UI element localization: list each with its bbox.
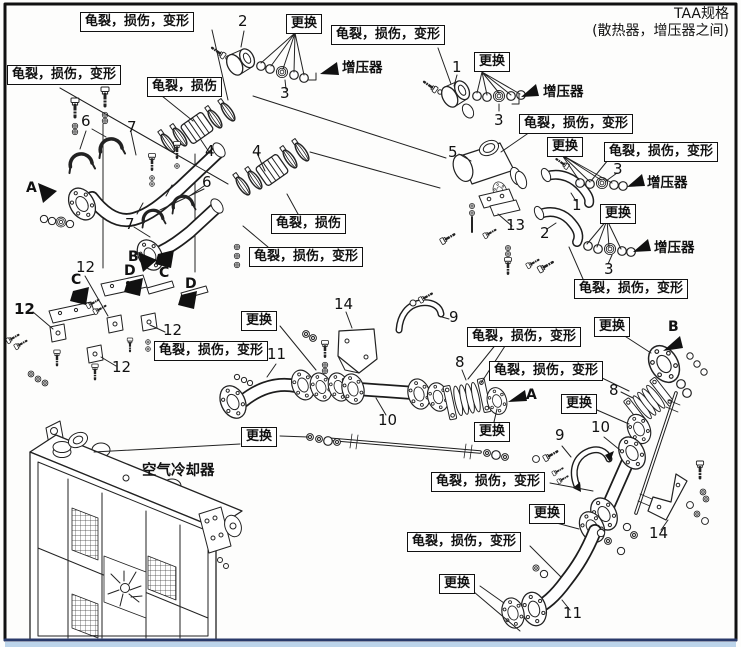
arrow-turbo-3 — [627, 174, 645, 187]
part-number-13: 13 — [506, 218, 525, 233]
callout-replace-9: 更换 — [241, 427, 277, 447]
page-title: TAA规格 (散热器，增压器之间) — [592, 6, 729, 40]
part-number-4-b: 4 — [252, 144, 262, 159]
part-number-14-b: 14 — [649, 526, 668, 541]
part-number-5: 5 — [448, 145, 458, 160]
part-number-7-b: 7 — [125, 217, 135, 232]
callout-crack-damage-deform-12: 龟裂，损伤，变形 — [407, 532, 521, 552]
part-number-1-b: 1 — [572, 198, 582, 213]
part-number-3-d: 3 — [604, 262, 614, 277]
arrow-turbo-2 — [521, 84, 539, 97]
part-number-14-a: 14 — [334, 297, 353, 312]
callout-replace-10: 更换 — [529, 504, 565, 524]
part-number-8-b: 8 — [609, 383, 619, 398]
page-title-line1: TAA规格 — [592, 6, 729, 23]
ref-letter-b-1: B — [128, 250, 139, 264]
part-number-9-b: 9 — [555, 428, 565, 443]
part-number-1-a: 1 — [452, 60, 462, 75]
part-number-2-a: 2 — [238, 14, 248, 29]
callout-crack-damage-deform-9: 龟裂，损伤，变形 — [467, 327, 581, 347]
part-number-12-c: 12 — [163, 323, 182, 338]
callout-crack-damage-deform-6: 龟裂，损伤，变形 — [249, 247, 363, 267]
callout-replace-2: 更换 — [474, 52, 510, 72]
part-number-10-a: 10 — [378, 413, 397, 428]
part-number-11-b: 11 — [563, 606, 582, 621]
part-number-3-a: 3 — [280, 86, 290, 101]
part-number-3-b: 3 — [494, 113, 504, 128]
callout-replace-11: 更换 — [439, 574, 475, 594]
part-number-2-b: 2 — [540, 226, 550, 241]
air-cooler — [30, 421, 244, 640]
callout-replace-8: 更换 — [474, 422, 510, 442]
ref-letter-c-1: C — [71, 273, 81, 287]
callout-replace-6: 更换 — [594, 317, 630, 337]
callout-crack-damage-deform-7: 龟裂，损伤，变形 — [574, 279, 688, 299]
ref-letter-b-2: B — [668, 320, 679, 334]
arrow-turbo-1 — [320, 62, 339, 75]
callout-crack-damage-deform-10: 龟裂，损伤，变形 — [489, 361, 603, 381]
callout-replace-1: 更换 — [286, 14, 322, 34]
callout-crack-damage-deform-11: 龟裂，损伤，变形 — [431, 472, 545, 492]
label-turbocharger-3: 增压器 — [647, 171, 688, 191]
center-pipe-group — [215, 367, 510, 423]
part-number-9-a: 9 — [449, 310, 459, 325]
turbo-connector-1 — [422, 77, 525, 119]
callout-crack-damage-deform-5: 龟裂，损伤，变形 — [604, 142, 718, 162]
part-number-4-a: 4 — [205, 144, 215, 159]
part-number-6-b: 6 — [202, 175, 212, 190]
callout-crack-damage-deform-1: 龟裂，损伤，变形 — [80, 12, 194, 32]
callout-crack-damage-1: 龟裂，损伤 — [147, 77, 222, 97]
ref-letter-a-2: A — [526, 388, 537, 402]
part-number-12-d: 12 — [112, 360, 131, 375]
label-turbocharger-1: 增压器 — [342, 56, 383, 76]
turbo-connector-2 — [210, 45, 308, 82]
tube-9-right — [542, 449, 614, 492]
page-title-line2: (散热器，增压器之间) — [592, 23, 729, 40]
callout-crack-damage-deform-4: 龟裂，损伤，变形 — [519, 114, 633, 134]
part-number-6-a: 6 — [81, 114, 91, 129]
callout-crack-damage-deform-3: 龟裂，损伤，变形 — [7, 65, 121, 85]
label-air-cooler: 空气冷却器 — [142, 459, 215, 480]
ref-letter-c-2: C — [159, 266, 169, 280]
part-number-12-b: 12 — [14, 302, 35, 317]
part-number-8-a: 8 — [455, 355, 465, 370]
arrow-turbo-4 — [633, 239, 651, 252]
callout-replace-7: 更换 — [561, 394, 597, 414]
part-number-7-a: 7 — [127, 120, 137, 135]
callout-replace-4: 更换 — [600, 204, 636, 224]
part-number-10-b: 10 — [591, 420, 610, 435]
callout-crack-damage-deform-2: 龟裂，损伤，变形 — [331, 25, 445, 45]
arrow-a-lower — [508, 390, 527, 402]
arrow-b-lower — [663, 336, 683, 351]
ref-letter-d-1: D — [124, 264, 136, 278]
label-turbocharger-4: 增压器 — [654, 236, 695, 256]
wedge-c-1 — [70, 287, 89, 305]
callout-crack-damage-deform-8: 龟裂，损伤，变形 — [154, 341, 268, 361]
diagram-page: TAA规格 (散热器，增压器之间) 龟裂，损伤，变形 更换 龟裂，损伤，变形 龟… — [0, 0, 741, 647]
ref-letter-d-2: D — [185, 277, 197, 291]
callout-replace-5: 更换 — [241, 311, 277, 331]
arrow-a-upper — [38, 183, 57, 203]
label-turbocharger-2: 增压器 — [543, 80, 584, 100]
tube-9-left — [399, 291, 441, 330]
ref-letter-a-1: A — [26, 181, 37, 195]
callout-crack-damage-2: 龟裂，损伤 — [271, 214, 346, 234]
part-number-11-a: 11 — [267, 347, 286, 362]
bracket-14-right — [648, 461, 709, 524]
part-number-3-c: 3 — [613, 162, 623, 177]
callout-replace-3: 更换 — [547, 137, 583, 157]
